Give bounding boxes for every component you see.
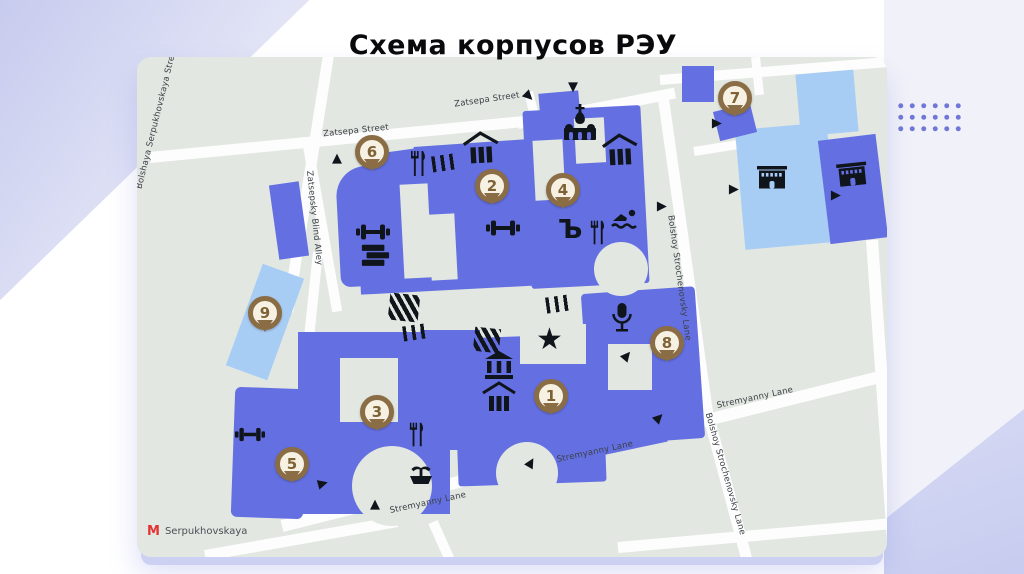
microphone-icon — [609, 301, 635, 336]
archway — [594, 242, 648, 296]
courtyard — [428, 213, 457, 280]
pin-label: 1 — [546, 387, 556, 405]
street-bottom-spur — [428, 520, 457, 557]
entrance-arrow: ▲ — [656, 202, 669, 212]
swimming-pool-icon — [611, 207, 641, 232]
pin-label: 5 — [287, 455, 297, 473]
restaurant-icon — [589, 219, 606, 246]
pin-label: 6 — [367, 143, 377, 161]
books-icon — [360, 243, 390, 269]
campus-map: Bolshaya Serpukhovskaya Street Zatsepa S… — [137, 57, 887, 557]
pin-4[interactable]: 4 — [546, 173, 580, 207]
courtyard — [400, 183, 433, 278]
stairs-icon — [388, 293, 421, 323]
street-east-edge — [866, 240, 887, 557]
dumbbell-icon — [235, 425, 265, 444]
star-icon: ★ — [536, 325, 563, 355]
entrance-arrow: ▲ — [830, 191, 843, 201]
restaurant-icon — [409, 150, 427, 177]
dumbbell-icon — [486, 218, 520, 238]
street-label-strochenovsky-2: Bolshoy Strochenovsky Lane — [703, 412, 748, 537]
entrance-arrow: ▲ — [728, 185, 741, 195]
kommersant-letter-icon: Ъ — [558, 217, 582, 243]
university-pavilion-icon — [481, 381, 517, 413]
fence-icon — [431, 154, 455, 173]
street-bottom-east — [618, 518, 887, 553]
pin-1[interactable]: 1 — [534, 379, 568, 413]
pin-label: 9 — [260, 304, 270, 322]
pin-7[interactable]: 7 — [718, 81, 752, 115]
pin-label: 8 — [662, 334, 672, 352]
street-label-bolshaya-serpukhovskaya: Bolshaya Serpukhovskaya Street — [137, 57, 180, 190]
entrance-arrow: ▲ — [711, 119, 724, 129]
page-title: Схема корпусов РЭУ — [349, 30, 677, 61]
pin-label: 3 — [372, 403, 382, 421]
fence-icon — [545, 294, 571, 313]
street-label-zatsepa-2: Zatsepa Street — [454, 90, 521, 109]
pin-8[interactable]: 8 — [650, 326, 684, 360]
church-icon — [561, 103, 599, 143]
pin-5[interactable]: 5 — [275, 447, 309, 481]
bank-icon — [483, 349, 515, 381]
street-top-spur — [751, 57, 764, 95]
pin-2[interactable]: 2 — [475, 169, 509, 203]
dumbbell-icon — [356, 222, 390, 242]
entrance-arrow: ▲ — [332, 152, 342, 165]
university-pavilion-icon — [460, 130, 502, 166]
metro-station: M Serpukhovskaya — [147, 524, 247, 539]
metro-station-name: Serpukhovskaya — [165, 526, 247, 537]
pin-label: 2 — [487, 177, 497, 195]
pin-9[interactable]: 9 — [248, 296, 282, 330]
school-building-icon — [755, 161, 789, 191]
entrance-arrow: ▲ — [370, 498, 380, 511]
building-east — [818, 134, 887, 244]
dots-pattern — [893, 98, 961, 134]
entrance-arrow: ▲ — [568, 81, 578, 94]
school-building-icon — [834, 156, 871, 189]
metro-icon: M — [147, 524, 160, 539]
university-pavilion-icon — [600, 132, 640, 168]
fountain-icon — [407, 463, 435, 487]
restaurant-icon — [408, 421, 425, 448]
pin-3[interactable]: 3 — [360, 395, 394, 429]
pin-label: 7 — [730, 89, 740, 107]
pin-6[interactable]: 6 — [355, 135, 389, 169]
fence-icon — [402, 324, 426, 342]
stairs-icon — [473, 327, 501, 354]
archway — [496, 442, 558, 504]
pin-label: 4 — [558, 181, 568, 199]
building-small-north — [682, 66, 714, 102]
